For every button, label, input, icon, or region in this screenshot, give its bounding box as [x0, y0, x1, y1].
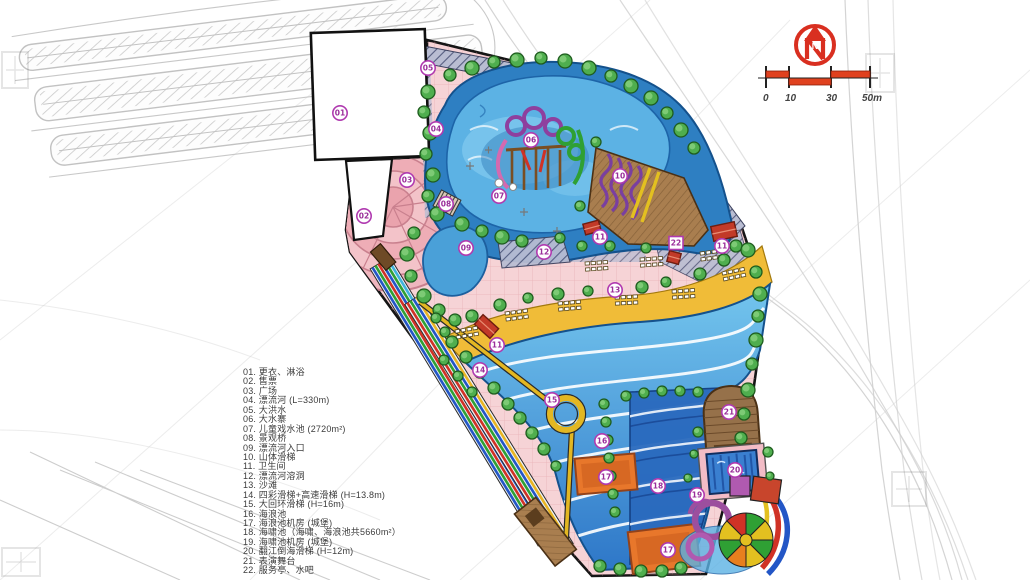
- plan-marker-09: 09: [459, 241, 473, 255]
- svg-text:17: 17: [663, 546, 673, 555]
- waterpark-master-plan: 0102030405060708091011111112131415161717…: [0, 0, 1030, 580]
- svg-text:12: 12: [539, 248, 549, 257]
- plan-marker-14: 14: [473, 363, 487, 377]
- plan-marker-21: 21: [722, 405, 736, 419]
- plan-marker-18: 18: [651, 479, 665, 493]
- plan-marker-05: 05: [421, 61, 435, 75]
- svg-text:10: 10: [615, 172, 625, 181]
- plan-marker-20: 20: [728, 463, 742, 477]
- svg-text:01: 01: [335, 109, 345, 118]
- plan-marker-17: 17: [599, 470, 613, 484]
- legend: 01. 更衣、淋浴02. 售票03. 广场04. 漂流河 (L=330m)05.…: [243, 368, 401, 576]
- svg-text:21: 21: [724, 408, 734, 417]
- svg-text:22: 22: [671, 239, 681, 248]
- plan-marker-19: 19: [690, 488, 704, 502]
- plan-marker-16: 16: [595, 434, 609, 448]
- svg-text:11: 11: [717, 242, 727, 251]
- plan-marker-07: 07: [492, 189, 506, 203]
- plan-marker-12: 12: [537, 245, 551, 259]
- plan-marker-08: 08: [439, 197, 453, 211]
- svg-text:14: 14: [475, 366, 485, 375]
- svg-text:02: 02: [359, 212, 369, 221]
- svg-text:11: 11: [492, 341, 502, 350]
- plan-marker-11: 11: [593, 230, 607, 244]
- svg-text:20: 20: [730, 466, 740, 475]
- svg-text:04: 04: [431, 125, 441, 134]
- plan-marker-02: 02: [357, 209, 371, 223]
- scale-tick-label: 10: [785, 93, 796, 104]
- svg-text:06: 06: [526, 136, 536, 145]
- svg-text:15: 15: [547, 396, 557, 405]
- svg-text:07: 07: [494, 192, 504, 201]
- plan-marker-15: 15: [545, 393, 559, 407]
- scale-tick-label: 30: [826, 93, 837, 104]
- plan-marker-11: 11: [490, 338, 504, 352]
- svg-text:18: 18: [653, 482, 663, 491]
- svg-text:09: 09: [461, 244, 471, 253]
- plan-marker-06: 06: [524, 133, 538, 147]
- svg-text:11: 11: [595, 233, 605, 242]
- svg-text:16: 16: [597, 437, 607, 446]
- plan-marker-22: 22: [669, 237, 683, 250]
- scale-bar: [758, 66, 878, 88]
- site-plan-canvas: 0102030405060708091011111112131415161717…: [0, 0, 1030, 580]
- scale-tick-label: 50m: [862, 93, 882, 104]
- svg-text:08: 08: [441, 200, 451, 209]
- svg-text:19: 19: [692, 491, 702, 500]
- legend-item: 22. 服务亭、水吧: [243, 566, 401, 575]
- scale-tick-label: 0: [763, 93, 769, 104]
- plan-marker-13: 13: [608, 283, 622, 297]
- plan-marker-17: 17: [661, 543, 675, 557]
- plan-marker-10: 10: [613, 169, 627, 183]
- svg-text:05: 05: [423, 64, 433, 73]
- svg-text:03: 03: [402, 176, 412, 185]
- plan-marker-11: 11: [715, 239, 729, 253]
- north-arrow: N: [796, 25, 834, 64]
- plan-marker-01: 01: [333, 106, 347, 120]
- plan-marker-03: 03: [400, 173, 414, 187]
- building-01-changing-shower: [311, 29, 429, 160]
- svg-text:17: 17: [601, 473, 611, 482]
- north-letter: N: [812, 41, 819, 51]
- svg-text:13: 13: [610, 286, 620, 295]
- plan-marker-04: 04: [429, 122, 443, 136]
